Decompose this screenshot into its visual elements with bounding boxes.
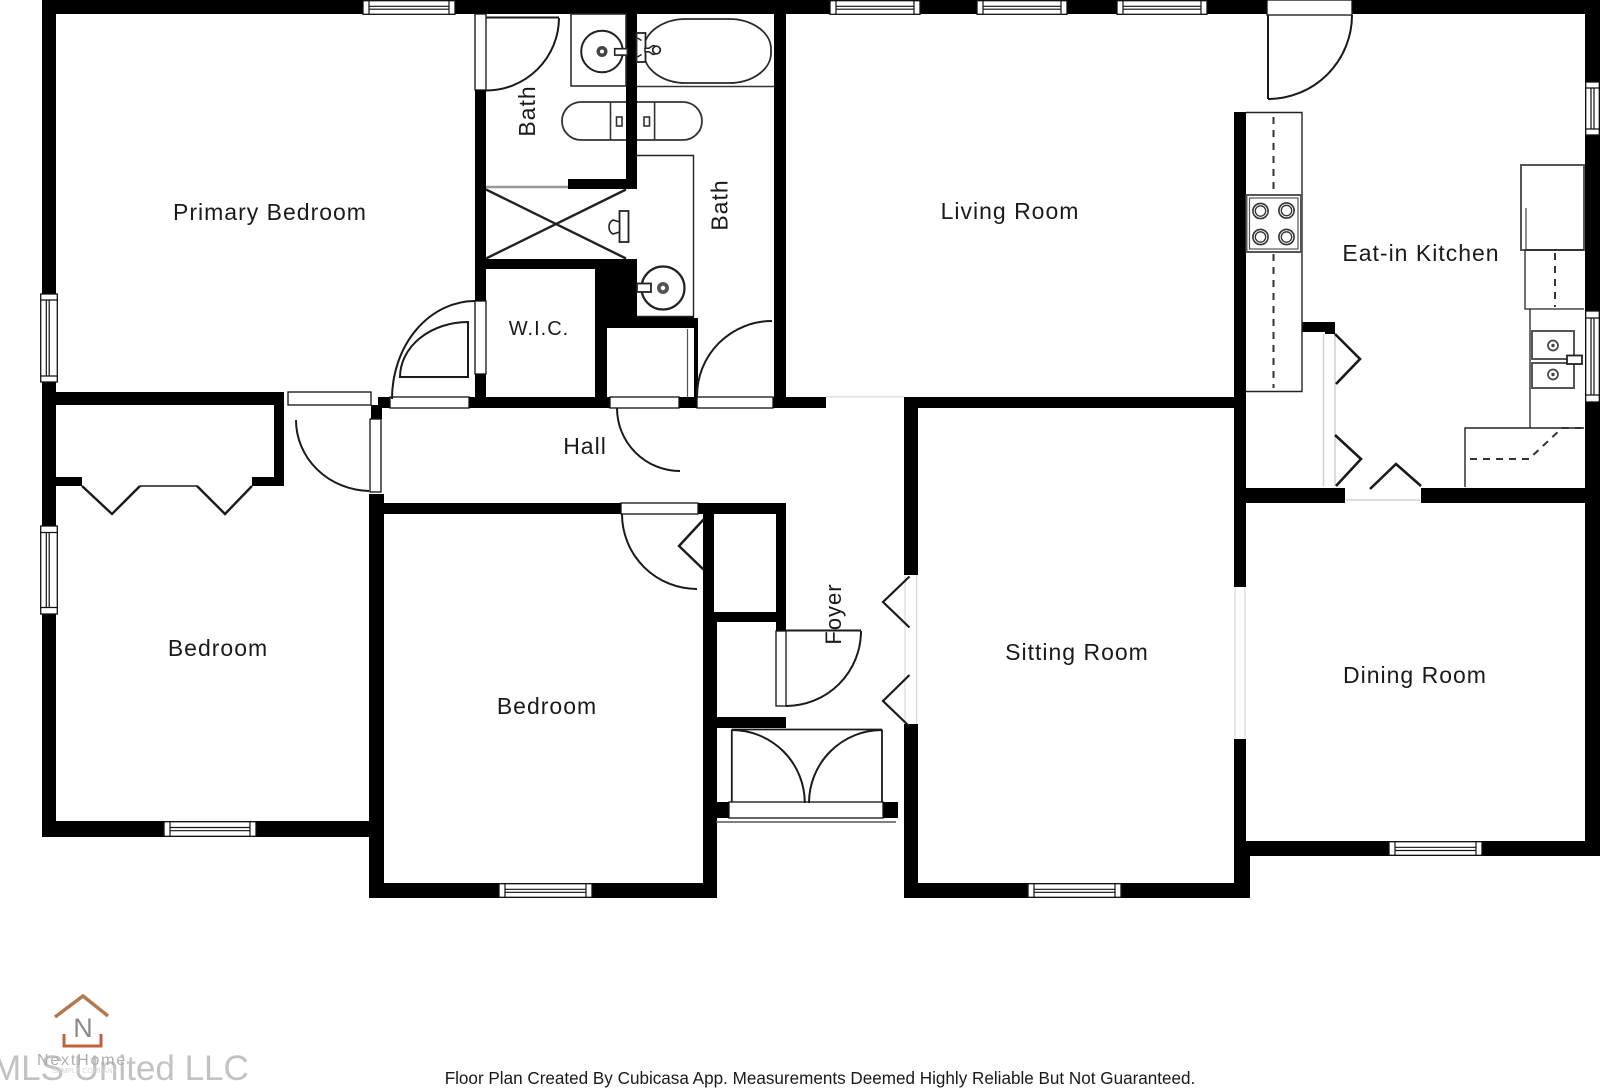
svg-text:Living Room: Living Room	[941, 198, 1080, 224]
svg-text:N: N	[73, 1013, 93, 1043]
svg-text:Bath: Bath	[514, 85, 540, 136]
svg-text:SAMPLE COMPANY: SAMPLE COMPANY	[52, 1068, 118, 1075]
svg-text:Bedroom: Bedroom	[497, 693, 597, 719]
svg-text:Bath: Bath	[707, 179, 733, 230]
svg-text:Dining Room: Dining Room	[1343, 662, 1487, 688]
svg-text:Primary Bedroom: Primary Bedroom	[173, 199, 367, 225]
svg-text:Bedroom: Bedroom	[168, 635, 268, 661]
svg-text:Sitting Room: Sitting Room	[1005, 639, 1149, 665]
svg-text:W.I.C.: W.I.C.	[509, 318, 569, 340]
svg-text:Hall: Hall	[563, 433, 607, 459]
svg-text:NextHome: NextHome	[37, 1052, 127, 1069]
svg-text:Foyer: Foyer	[821, 583, 846, 644]
svg-text:Floor Plan Created By Cubicasa: Floor Plan Created By Cubicasa App. Meas…	[445, 1069, 1196, 1088]
svg-text:Eat-in Kitchen: Eat-in Kitchen	[1342, 240, 1499, 266]
